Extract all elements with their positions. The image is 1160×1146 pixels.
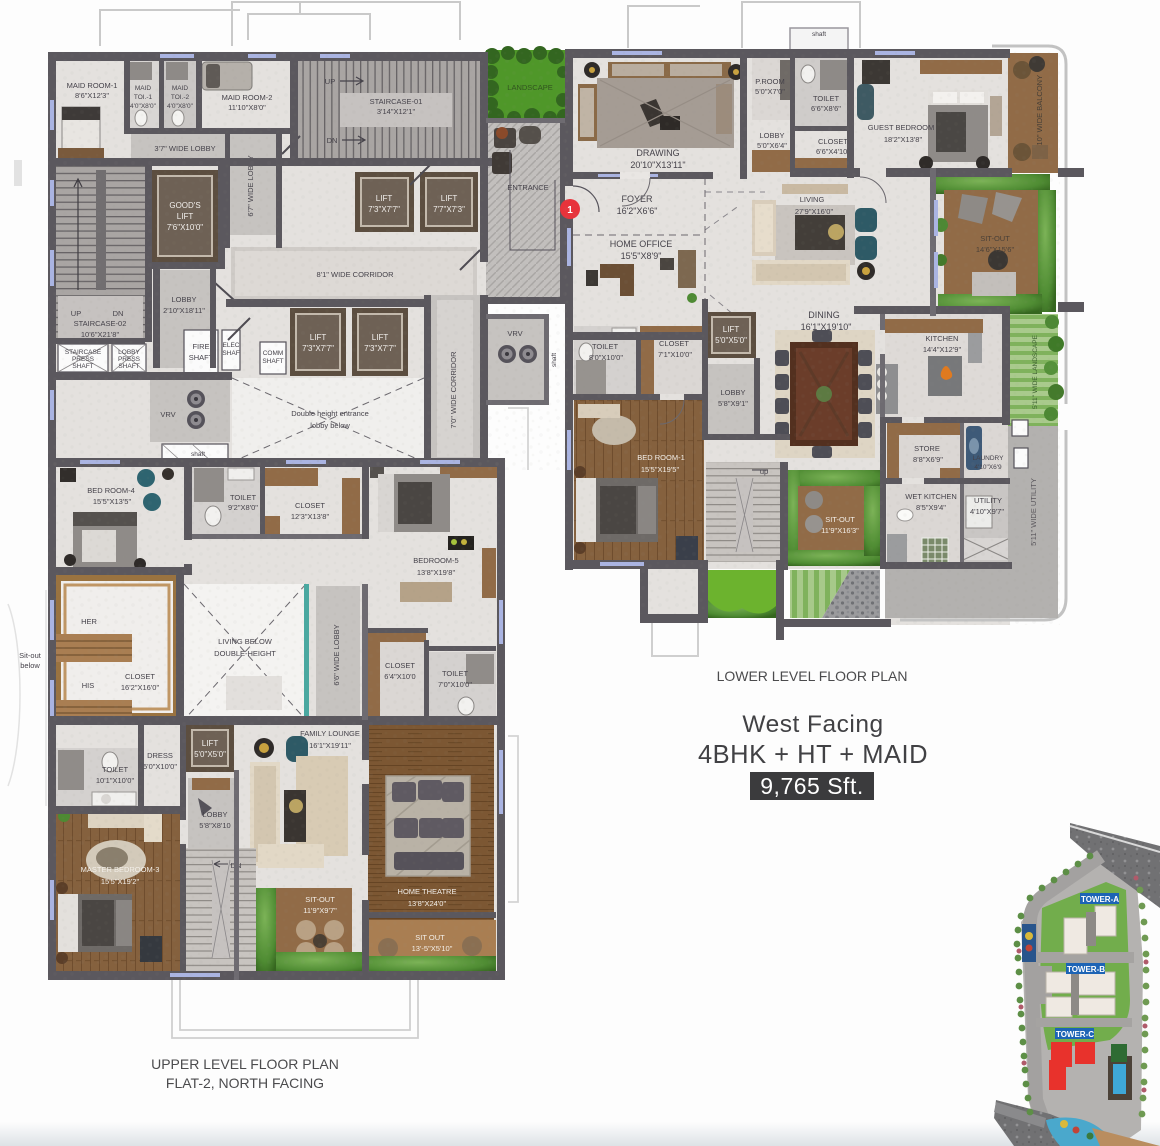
svg-text:Sit-out: Sit-out (19, 651, 42, 660)
svg-text:LOWER LEVEL FLOOR PLAN: LOWER LEVEL FLOOR PLAN (717, 668, 908, 684)
svg-text:9,765 Sft.: 9,765 Sft. (760, 773, 863, 799)
svg-text:FLAT-2, NORTH FACING: FLAT-2, NORTH FACING (166, 1075, 324, 1091)
svg-text:below: below (20, 661, 40, 670)
svg-text:West Facing: West Facing (742, 711, 883, 738)
svg-text:UPPER LEVEL FLOOR PLAN: UPPER LEVEL FLOOR PLAN (151, 1056, 339, 1072)
svg-text:TOWER-A: TOWER-A (1081, 895, 1119, 904)
svg-text:shaft: shaft (812, 31, 826, 38)
svg-text:TOWER-B: TOWER-B (1067, 965, 1105, 974)
svg-text:4BHK + HT + MAID: 4BHK + HT + MAID (698, 741, 928, 769)
svg-text:TOWER-C: TOWER-C (1056, 1030, 1094, 1039)
